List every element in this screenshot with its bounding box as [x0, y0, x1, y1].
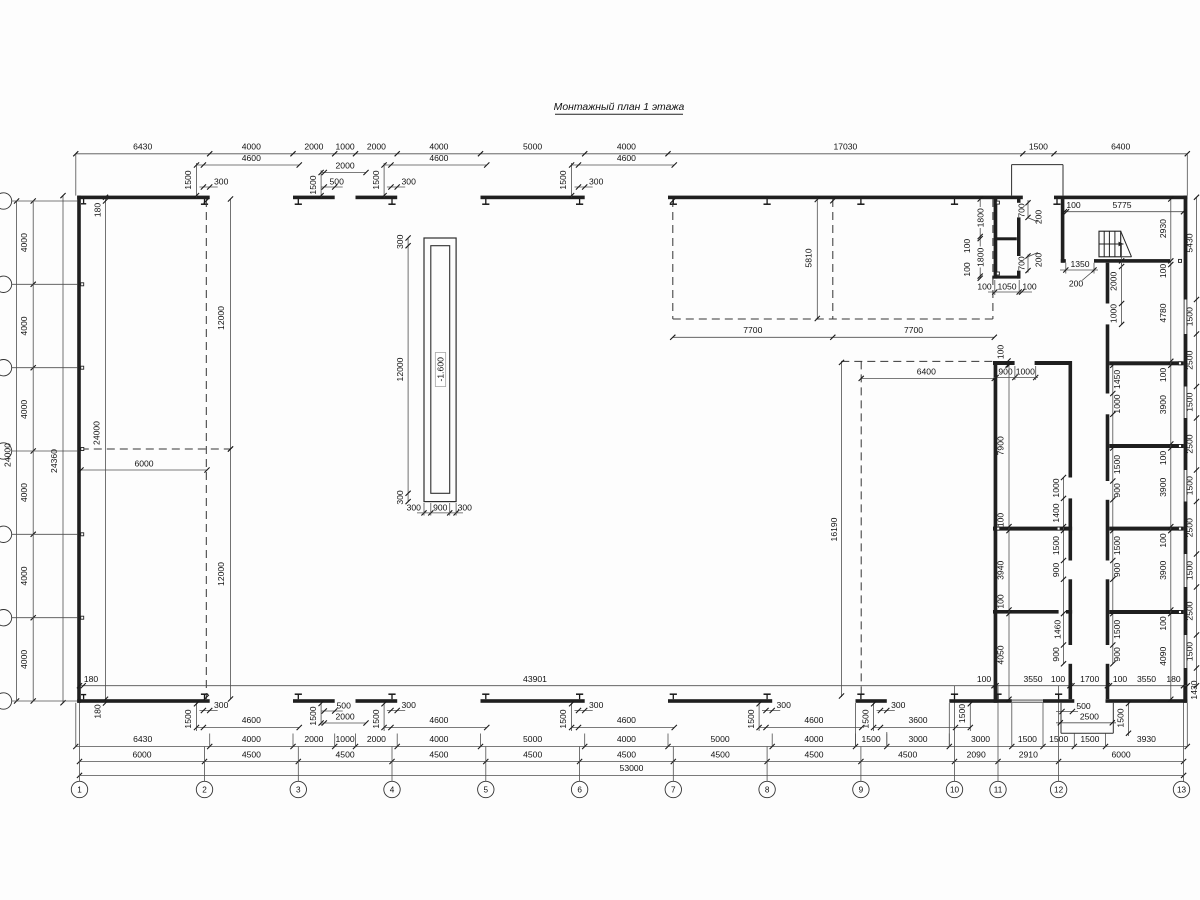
- svg-text:300: 300: [214, 176, 229, 186]
- svg-text:200: 200: [1034, 253, 1044, 268]
- svg-text:3940: 3940: [996, 561, 1006, 580]
- svg-text:4500: 4500: [429, 749, 448, 759]
- svg-text:1400: 1400: [1051, 503, 1061, 522]
- svg-text:Монтажный план 1 этажа: Монтажный план 1 этажа: [554, 102, 685, 113]
- svg-text:12000: 12000: [216, 562, 226, 586]
- svg-text:4500: 4500: [898, 749, 917, 759]
- svg-text:4780: 4780: [1158, 303, 1168, 322]
- svg-text:4000: 4000: [19, 316, 29, 335]
- svg-text:1500: 1500: [183, 170, 193, 189]
- svg-text:5000: 5000: [523, 142, 542, 152]
- svg-text:4000: 4000: [19, 483, 29, 502]
- svg-text:7700: 7700: [743, 325, 762, 335]
- svg-text:2: 2: [202, 786, 207, 795]
- svg-text:100: 100: [1113, 674, 1128, 684]
- svg-text:100: 100: [962, 239, 972, 254]
- svg-text:100: 100: [996, 513, 1006, 528]
- svg-text:4500: 4500: [242, 749, 261, 759]
- svg-text:500: 500: [337, 701, 352, 711]
- svg-text:5810: 5810: [804, 248, 814, 267]
- svg-text:900: 900: [1112, 647, 1122, 662]
- svg-text:300: 300: [402, 700, 417, 710]
- svg-text:1500: 1500: [1080, 734, 1099, 744]
- svg-text:6400: 6400: [917, 366, 936, 376]
- svg-text:6000: 6000: [1112, 749, 1131, 759]
- svg-text:1000: 1000: [1016, 366, 1035, 376]
- svg-text:12: 12: [1054, 786, 1064, 795]
- svg-text:1500: 1500: [1112, 455, 1122, 474]
- svg-text:1500: 1500: [183, 709, 193, 728]
- svg-text:4600: 4600: [242, 715, 261, 725]
- svg-text:300: 300: [214, 700, 229, 710]
- svg-text:3550: 3550: [1137, 674, 1156, 684]
- svg-text:100: 100: [1022, 281, 1037, 291]
- svg-text:500: 500: [330, 176, 345, 186]
- svg-text:2500: 2500: [1080, 712, 1099, 722]
- svg-text:100: 100: [1158, 616, 1168, 631]
- svg-text:1500: 1500: [746, 709, 756, 728]
- svg-text:700: 700: [1016, 256, 1026, 271]
- svg-text:2000: 2000: [1108, 272, 1118, 291]
- svg-text:1460: 1460: [1053, 620, 1063, 639]
- svg-text:13: 13: [1177, 786, 1187, 795]
- svg-text:4090: 4090: [1158, 647, 1168, 666]
- svg-text:100: 100: [977, 674, 992, 684]
- svg-text:3000: 3000: [971, 734, 990, 744]
- svg-text:7: 7: [671, 786, 676, 795]
- svg-text:300: 300: [402, 176, 417, 186]
- svg-text:4500: 4500: [617, 749, 636, 759]
- svg-text:1500: 1500: [1185, 642, 1195, 661]
- svg-text:1000: 1000: [336, 142, 355, 152]
- svg-text:6: 6: [577, 786, 582, 795]
- svg-text:1500: 1500: [371, 170, 381, 189]
- svg-text:2000: 2000: [304, 734, 323, 744]
- svg-text:100: 100: [1158, 368, 1168, 383]
- svg-text:1000: 1000: [1051, 478, 1061, 497]
- svg-text:900: 900: [1051, 563, 1061, 578]
- svg-text:24000: 24000: [92, 421, 102, 445]
- svg-text:100: 100: [977, 281, 992, 291]
- svg-text:300: 300: [777, 700, 792, 710]
- svg-text:1450: 1450: [1112, 370, 1122, 389]
- svg-text:1500: 1500: [371, 709, 381, 728]
- svg-text:11: 11: [994, 786, 1003, 795]
- svg-text:1700: 1700: [1080, 674, 1099, 684]
- svg-text:900: 900: [433, 502, 448, 512]
- svg-text:100: 100: [996, 345, 1006, 360]
- svg-text:4600: 4600: [429, 153, 448, 163]
- svg-text:1500: 1500: [308, 175, 318, 194]
- svg-text:5: 5: [484, 786, 489, 795]
- svg-text:2000: 2000: [304, 142, 323, 152]
- svg-text:1500: 1500: [957, 704, 967, 723]
- svg-text:9: 9: [859, 786, 864, 795]
- svg-text:2500: 2500: [1185, 350, 1195, 369]
- svg-text:4500: 4500: [804, 749, 823, 759]
- svg-text:5775: 5775: [1112, 200, 1131, 210]
- svg-text:3: 3: [296, 786, 301, 795]
- svg-text:1050: 1050: [997, 281, 1016, 291]
- svg-text:300: 300: [458, 502, 473, 512]
- svg-text:4000: 4000: [242, 142, 261, 152]
- svg-text:4: 4: [390, 786, 395, 795]
- svg-text:1500: 1500: [1185, 307, 1195, 326]
- svg-text:4050: 4050: [996, 645, 1006, 664]
- svg-text:4000: 4000: [19, 650, 29, 669]
- svg-text:6000: 6000: [134, 458, 153, 468]
- svg-text:4000: 4000: [19, 566, 29, 585]
- svg-text:1350: 1350: [1070, 259, 1089, 269]
- svg-text:700: 700: [1016, 203, 1026, 218]
- svg-text:300: 300: [891, 700, 906, 710]
- svg-text:4600: 4600: [242, 153, 261, 163]
- svg-text:4000: 4000: [19, 400, 29, 419]
- svg-text:43901: 43901: [523, 674, 547, 684]
- svg-text:4000: 4000: [19, 233, 29, 252]
- svg-text:6430: 6430: [133, 142, 152, 152]
- svg-text:100: 100: [962, 262, 972, 277]
- svg-text:1500: 1500: [1112, 620, 1122, 639]
- svg-text:2000: 2000: [367, 734, 386, 744]
- svg-text:200: 200: [1034, 210, 1044, 225]
- svg-text:1500: 1500: [558, 170, 568, 189]
- svg-text:7700: 7700: [904, 325, 923, 335]
- svg-text:200: 200: [1069, 279, 1084, 289]
- svg-text:6400: 6400: [1111, 142, 1130, 152]
- svg-text:500: 500: [1076, 701, 1091, 711]
- svg-text:180: 180: [92, 203, 102, 218]
- svg-text:300: 300: [395, 490, 405, 505]
- svg-text:1800: 1800: [976, 248, 986, 267]
- svg-text:1500: 1500: [1112, 536, 1122, 555]
- svg-text:16190: 16190: [829, 517, 839, 541]
- svg-text:8: 8: [765, 786, 770, 795]
- svg-text:2090: 2090: [967, 749, 986, 759]
- svg-text:17030: 17030: [833, 142, 857, 152]
- svg-text:3900: 3900: [1158, 561, 1168, 580]
- svg-text:180: 180: [92, 704, 102, 719]
- svg-text:4500: 4500: [336, 749, 355, 759]
- svg-text:5000: 5000: [523, 734, 542, 744]
- svg-text:3000: 3000: [908, 734, 927, 744]
- svg-text:1000: 1000: [336, 734, 355, 744]
- svg-text:300: 300: [395, 234, 405, 249]
- svg-text:2930: 2930: [1158, 219, 1168, 238]
- svg-text:2000: 2000: [367, 142, 386, 152]
- svg-text:3600: 3600: [908, 715, 927, 725]
- svg-text:-1.600: -1.600: [436, 357, 446, 382]
- svg-text:100: 100: [1158, 451, 1168, 466]
- svg-text:24360: 24360: [49, 449, 59, 473]
- svg-text:180: 180: [1166, 674, 1181, 684]
- svg-text:4600: 4600: [804, 715, 823, 725]
- svg-text:3900: 3900: [1158, 395, 1168, 414]
- svg-text:4000: 4000: [429, 142, 448, 152]
- svg-text:4500: 4500: [523, 749, 542, 759]
- svg-text:900: 900: [1112, 563, 1122, 578]
- svg-text:12000: 12000: [395, 357, 405, 381]
- svg-text:1000: 1000: [1112, 394, 1122, 413]
- svg-text:6000: 6000: [132, 749, 151, 759]
- svg-text:2500: 2500: [1185, 434, 1195, 453]
- svg-text:2000: 2000: [336, 161, 355, 171]
- svg-text:1500: 1500: [1051, 536, 1061, 555]
- svg-text:1500: 1500: [558, 709, 568, 728]
- svg-text:3550: 3550: [1023, 674, 1042, 684]
- svg-text:1: 1: [77, 786, 82, 795]
- svg-text:100: 100: [1066, 200, 1081, 210]
- svg-text:4600: 4600: [617, 715, 636, 725]
- svg-text:4500: 4500: [711, 749, 730, 759]
- svg-text:2910: 2910: [1019, 749, 1038, 759]
- svg-text:900: 900: [1112, 483, 1122, 498]
- svg-text:2500: 2500: [1185, 601, 1195, 620]
- svg-text:53000: 53000: [620, 763, 644, 773]
- svg-text:2000: 2000: [336, 712, 355, 722]
- svg-text:1500: 1500: [1185, 392, 1195, 411]
- svg-text:5430: 5430: [1185, 233, 1195, 252]
- svg-text:7900: 7900: [996, 436, 1006, 455]
- svg-text:5000: 5000: [711, 734, 730, 744]
- svg-text:100: 100: [1158, 533, 1168, 548]
- svg-text:4000: 4000: [429, 734, 448, 744]
- svg-text:3930: 3930: [1137, 734, 1156, 744]
- svg-text:2500: 2500: [1185, 518, 1195, 537]
- svg-text:4000: 4000: [617, 142, 636, 152]
- svg-text:1000: 1000: [1108, 304, 1118, 323]
- svg-text:4000: 4000: [617, 734, 636, 744]
- svg-text:1500: 1500: [1185, 561, 1195, 580]
- svg-text:10: 10: [950, 786, 960, 795]
- svg-text:100: 100: [1158, 264, 1168, 279]
- svg-text:300: 300: [589, 176, 604, 186]
- svg-text:12000: 12000: [216, 306, 226, 330]
- svg-text:100: 100: [996, 594, 1006, 609]
- svg-text:1500: 1500: [1185, 476, 1195, 495]
- svg-text:1500: 1500: [1115, 708, 1125, 727]
- svg-text:6430: 6430: [133, 734, 152, 744]
- svg-text:3900: 3900: [1158, 478, 1168, 497]
- svg-text:1500: 1500: [862, 734, 881, 744]
- svg-text:300: 300: [589, 700, 604, 710]
- svg-text:1800: 1800: [976, 208, 986, 227]
- svg-text:1430: 1430: [1189, 680, 1199, 699]
- svg-text:180: 180: [84, 674, 99, 684]
- svg-text:100: 100: [1051, 674, 1066, 684]
- svg-text:1500: 1500: [1029, 142, 1048, 152]
- svg-text:4600: 4600: [429, 715, 448, 725]
- svg-text:1500: 1500: [1018, 734, 1037, 744]
- svg-text:1500: 1500: [860, 709, 870, 728]
- svg-text:1500: 1500: [308, 706, 318, 725]
- svg-text:900: 900: [1051, 647, 1061, 662]
- svg-text:300: 300: [407, 502, 422, 512]
- svg-text:4600: 4600: [617, 153, 636, 163]
- svg-text:4000: 4000: [804, 734, 823, 744]
- svg-text:4000: 4000: [242, 734, 261, 744]
